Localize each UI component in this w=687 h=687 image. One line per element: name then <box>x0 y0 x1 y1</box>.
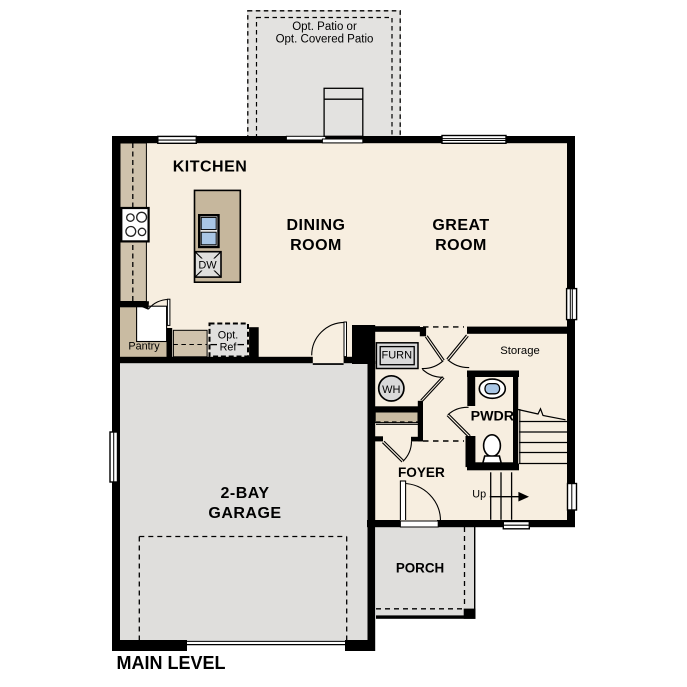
svg-text:Up: Up <box>472 489 486 501</box>
svg-text:PORCH: PORCH <box>396 561 444 576</box>
svg-text:GREAT: GREAT <box>432 217 489 234</box>
svg-text:Opt.: Opt. <box>218 330 238 342</box>
svg-text:GARAGE: GARAGE <box>208 505 281 522</box>
svg-text:DINING: DINING <box>287 217 346 234</box>
svg-text:FURN: FURN <box>382 349 413 361</box>
svg-text:ROOM: ROOM <box>435 237 487 254</box>
svg-text:MAIN LEVEL: MAIN LEVEL <box>117 653 226 673</box>
svg-text:DW: DW <box>198 259 217 271</box>
svg-text:FOYER: FOYER <box>398 465 445 480</box>
svg-text:Pantry: Pantry <box>128 341 160 353</box>
svg-text:2-BAY: 2-BAY <box>220 485 269 502</box>
svg-text:WH: WH <box>382 384 400 396</box>
svg-text:ROOM: ROOM <box>290 237 342 254</box>
svg-text:Ref: Ref <box>220 341 238 353</box>
svg-text:KITCHEN: KITCHEN <box>173 158 248 175</box>
svg-text:PWDR: PWDR <box>471 408 514 424</box>
svg-text:Storage: Storage <box>500 345 540 357</box>
svg-text:Opt. Patio or: Opt. Patio or <box>292 21 357 33</box>
svg-text:Opt. Covered Patio: Opt. Covered Patio <box>276 33 374 45</box>
